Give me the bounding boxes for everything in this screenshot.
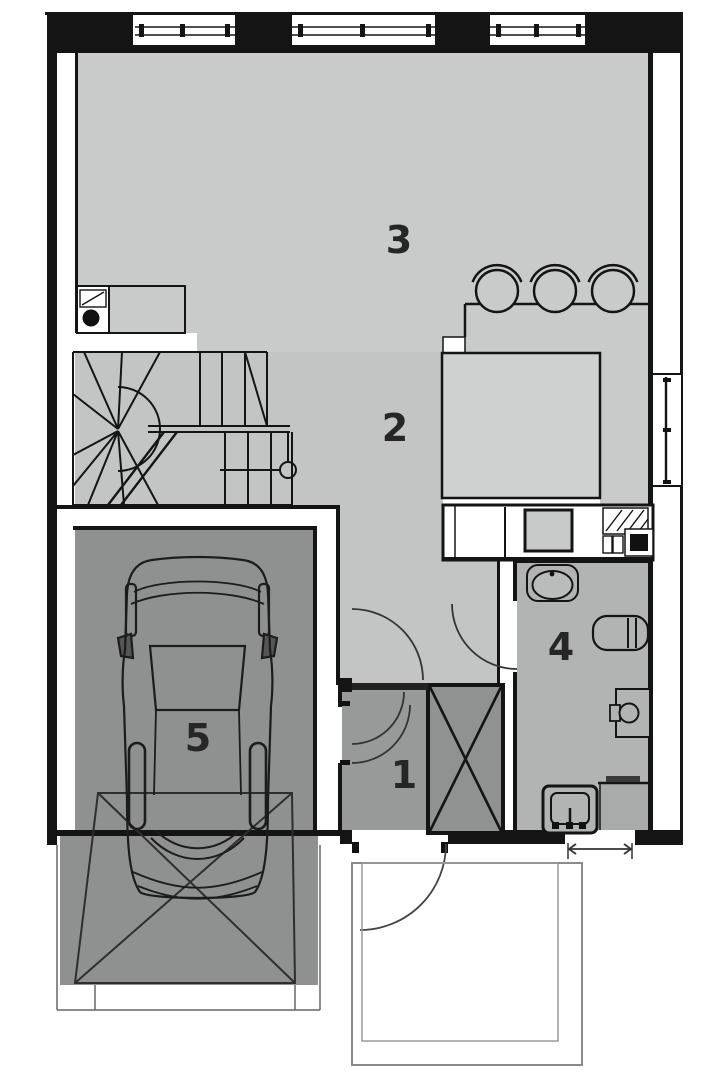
wall-pier [47, 12, 133, 52]
room-label-1: 1 [391, 753, 417, 797]
door-jamb [352, 842, 359, 853]
floor-plan: 1 2 3 4 5 [0, 0, 717, 1080]
entrance-door-arc [360, 844, 446, 930]
door-jamb [441, 842, 448, 853]
wall-pillar [443, 337, 465, 353]
washbasin-icon [527, 565, 578, 601]
kitchen-counter-east [443, 505, 653, 561]
wall-pier [435, 12, 490, 52]
door-leaf [352, 683, 428, 690]
stair-floor [73, 352, 295, 505]
garage-floor [75, 528, 313, 830]
bar-stool-icon [589, 265, 638, 312]
washing-machine-icon [543, 786, 597, 833]
shower-area [598, 776, 650, 830]
radiator-icon [593, 616, 648, 650]
sink-basin [630, 534, 648, 551]
bar-stools [473, 265, 638, 312]
threshold [606, 776, 640, 782]
porch-inner [362, 863, 558, 1041]
kitchen-island [442, 353, 600, 498]
toilet-icon [610, 689, 650, 737]
cooktop-icon [525, 510, 572, 551]
room-label-5: 5 [185, 716, 211, 760]
porch-outer [352, 863, 582, 1065]
kitchen-sink-icon [603, 508, 653, 556]
room-label-2: 2 [382, 406, 408, 450]
door-jamb [340, 701, 350, 706]
kitchen-counter [109, 286, 185, 333]
window-right [653, 373, 683, 487]
door-jamb [340, 760, 350, 765]
room-label-3: 3 [386, 218, 412, 262]
window-bottom [568, 843, 632, 859]
bar-stool-icon [531, 265, 580, 312]
wall-pier [585, 12, 683, 52]
room-label-4: 4 [548, 625, 574, 669]
kitchen-nw [77, 286, 185, 333]
floor-plan-drawing: 1 2 3 4 5 [0, 0, 717, 1080]
left-wall [47, 12, 57, 845]
burner-icon [83, 310, 100, 327]
entrance [352, 842, 582, 1065]
hall-floor [267, 352, 443, 505]
wall-pier [235, 12, 292, 52]
bar-stool-icon [473, 265, 522, 312]
